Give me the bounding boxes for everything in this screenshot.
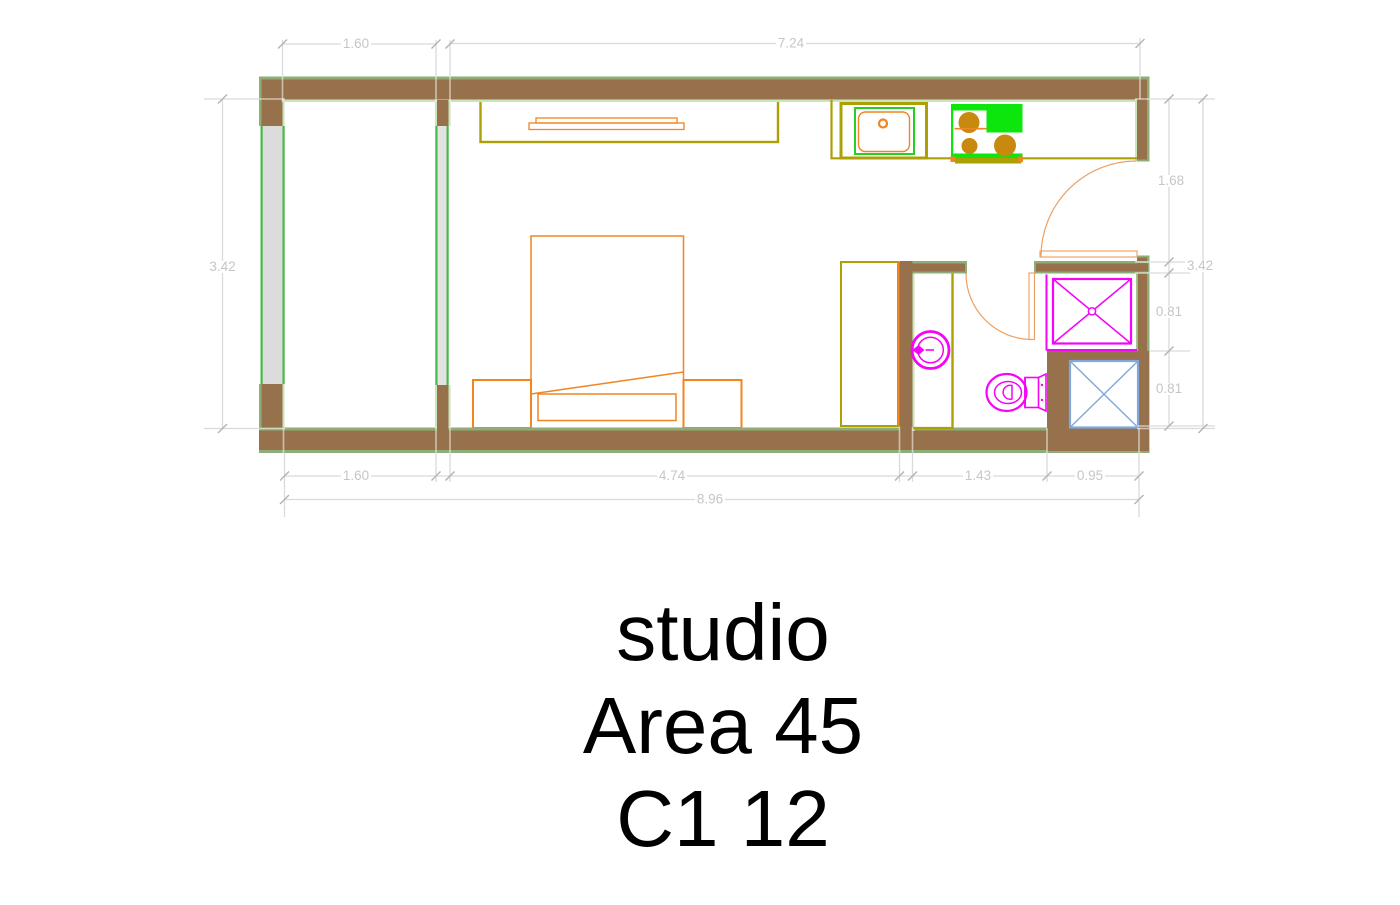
svg-text:1.60: 1.60: [343, 468, 369, 483]
svg-text:7.24: 7.24: [778, 36, 805, 51]
svg-text:4.74: 4.74: [659, 468, 686, 483]
svg-text:1.68: 1.68: [1158, 173, 1184, 188]
svg-text:3.42: 3.42: [209, 259, 235, 274]
svg-text:1.43: 1.43: [965, 468, 991, 483]
svg-text:3.42: 3.42: [1187, 258, 1213, 273]
svg-text:0.95: 0.95: [1077, 468, 1103, 483]
svg-text:0.81: 0.81: [1156, 304, 1182, 319]
svg-text:1.60: 1.60: [343, 36, 369, 51]
svg-text:0.81: 0.81: [1156, 381, 1182, 396]
svg-text:8.96: 8.96: [697, 492, 723, 507]
